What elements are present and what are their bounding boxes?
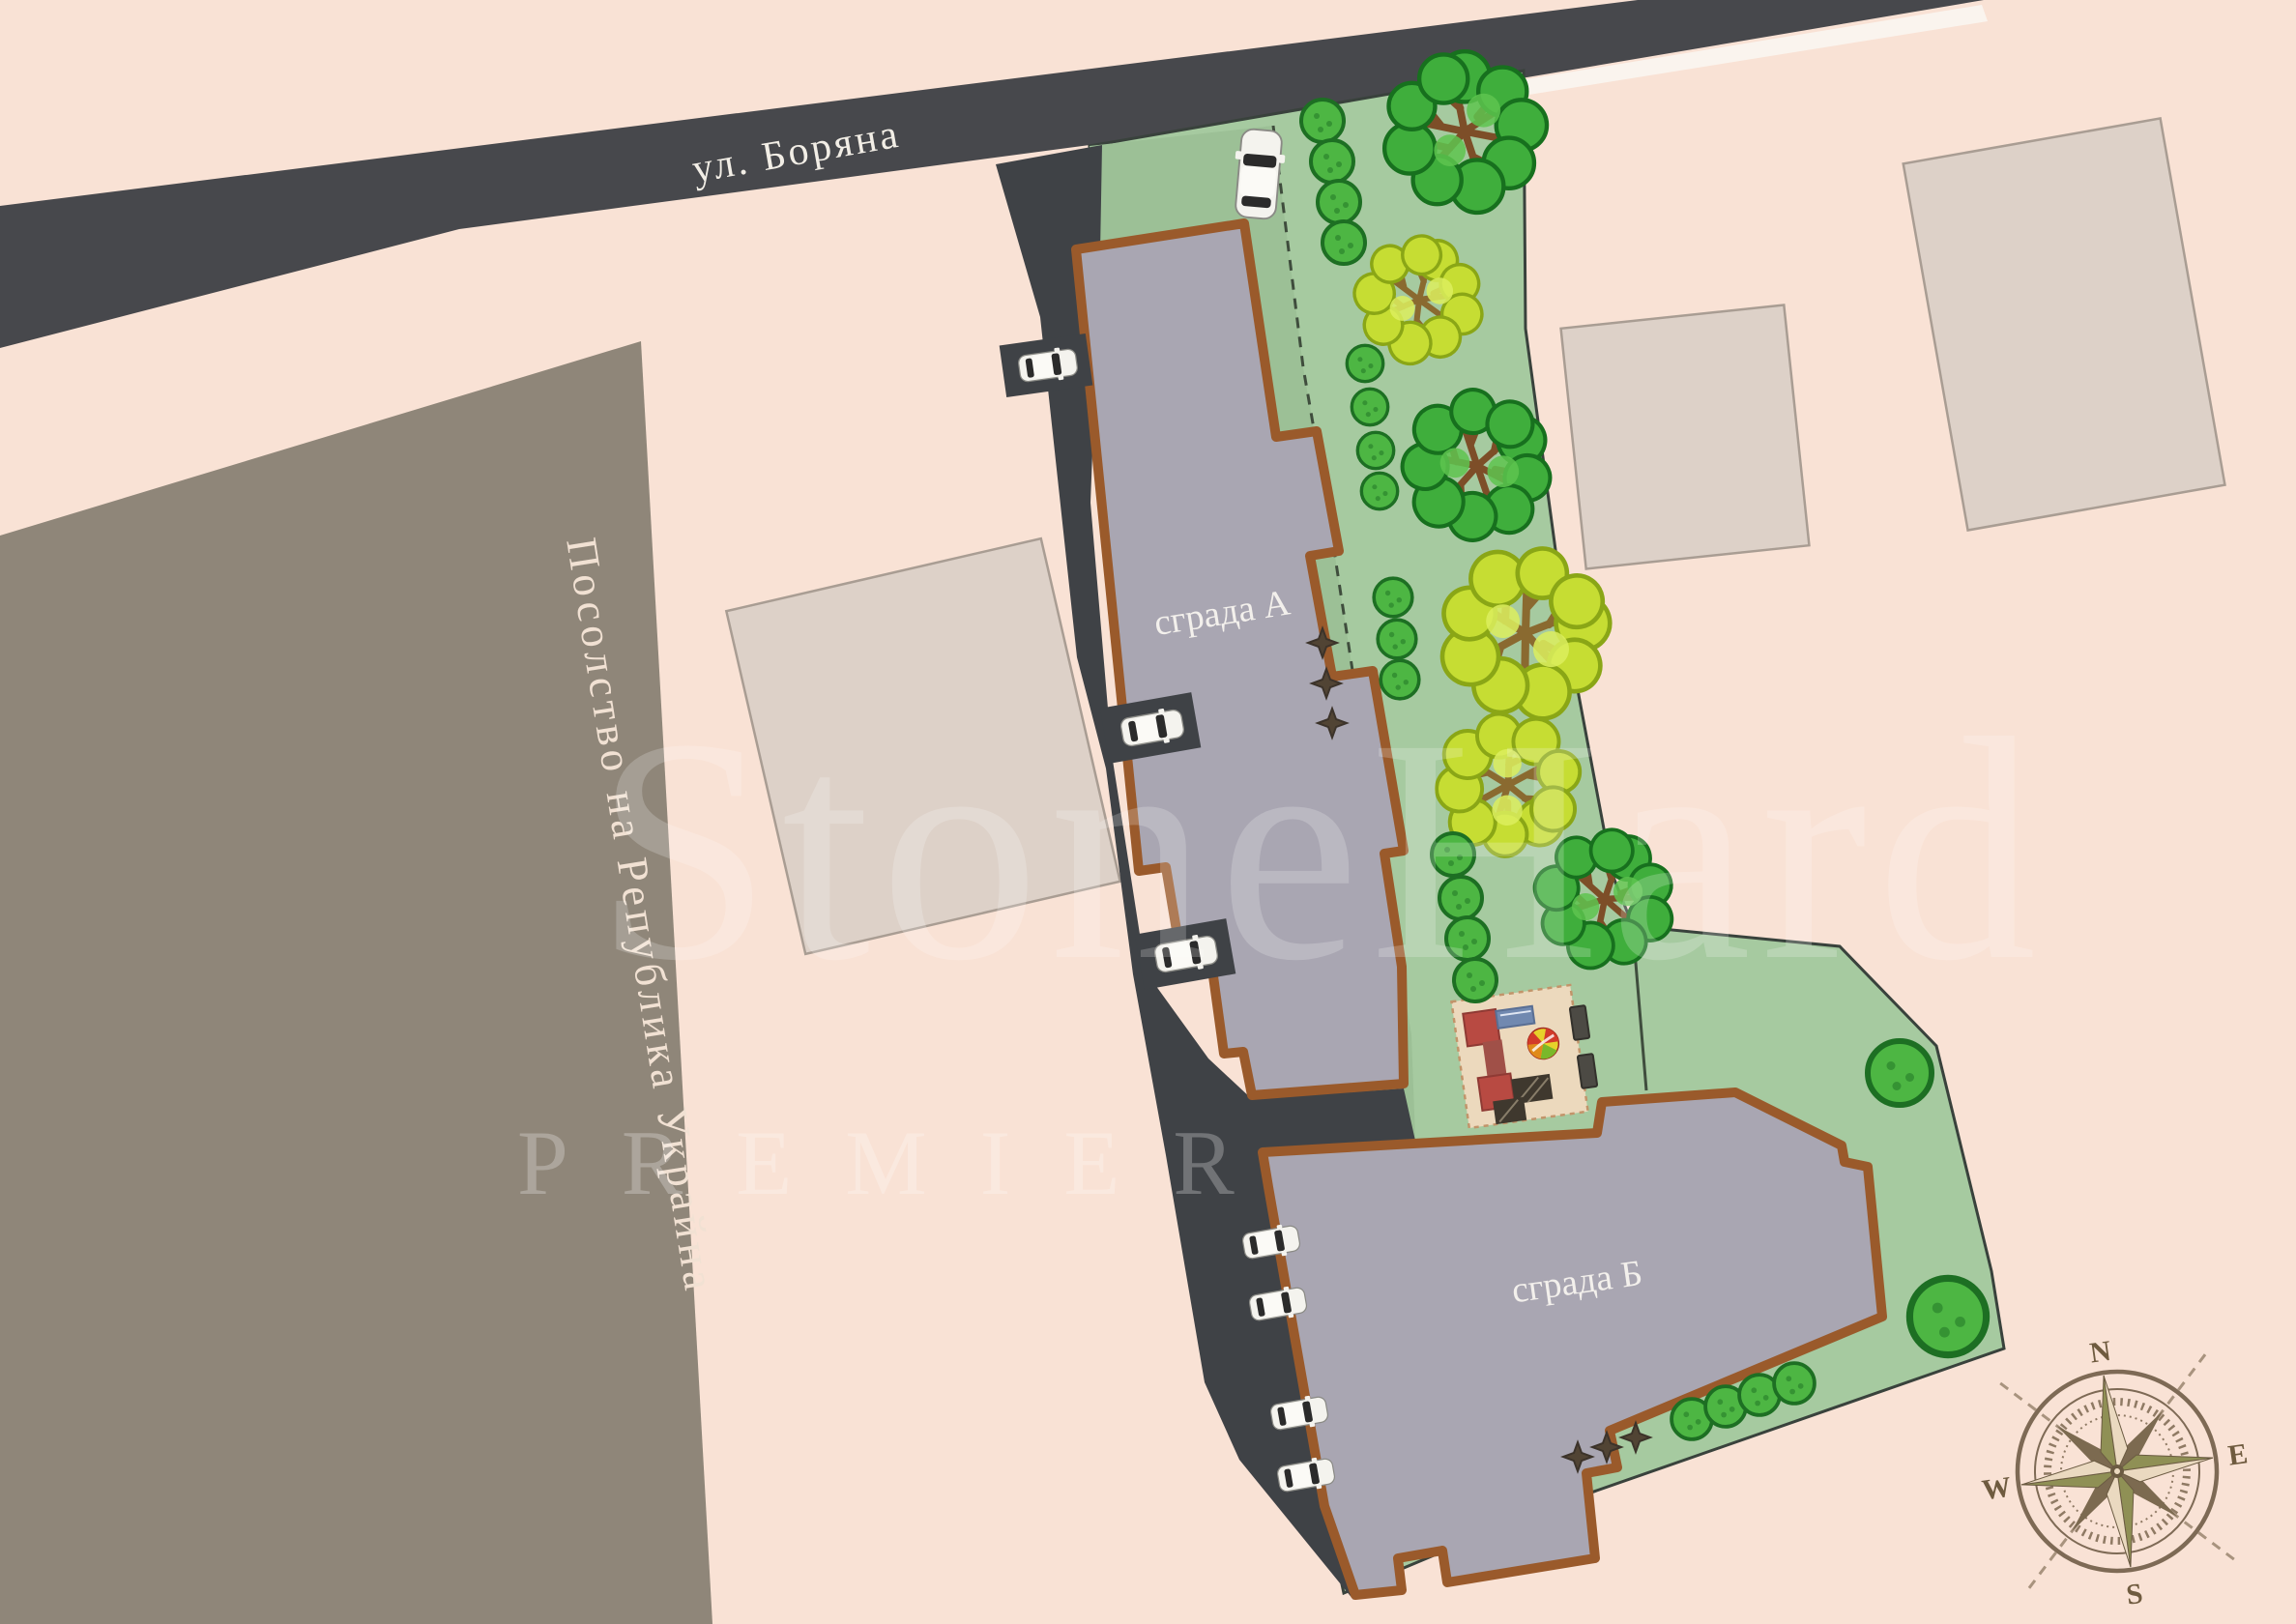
bush-icon	[1322, 221, 1365, 264]
bush-icon	[1374, 578, 1412, 617]
watermark-sub: PREMIER	[517, 1112, 1288, 1214]
bush-icon	[1909, 1278, 1986, 1354]
bush-icon	[1378, 620, 1416, 658]
bush-icon	[1347, 345, 1382, 381]
watermark-brand: StoneHard	[595, 674, 2046, 1027]
compass-w-label: W	[1980, 1471, 2013, 1507]
bush-icon	[1318, 181, 1360, 223]
bush-icon	[1311, 140, 1353, 183]
bush-icon	[1868, 1041, 1932, 1105]
bench	[1578, 1054, 1598, 1088]
bush-icon	[1357, 432, 1393, 468]
site-plan: ул. Боряна Посолство на Република Украйн…	[0, 0, 2296, 1624]
bush-icon	[1351, 389, 1387, 424]
bush-icon	[1301, 100, 1344, 142]
bush-icon	[1774, 1363, 1815, 1404]
neighbor-building	[1561, 305, 1810, 569]
bush-icon	[1361, 473, 1397, 508]
